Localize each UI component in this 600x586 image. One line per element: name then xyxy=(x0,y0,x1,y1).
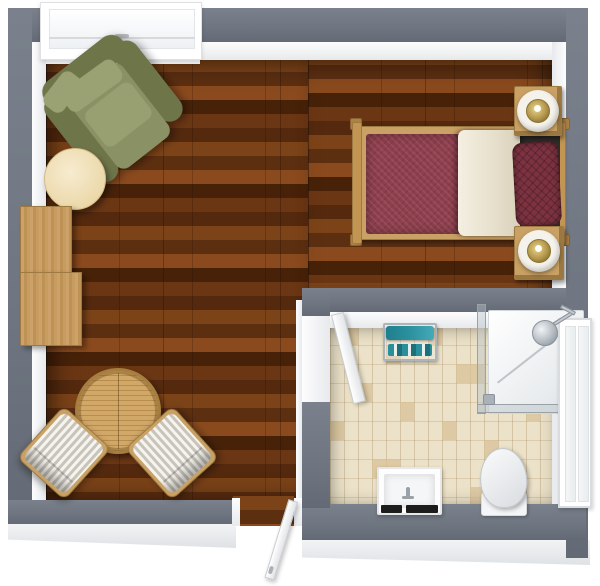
bed-pillow xyxy=(512,141,562,227)
sink-black-bar xyxy=(406,505,438,513)
bed-blanket xyxy=(458,130,520,236)
bathroom-window xyxy=(558,318,592,508)
door-handle-icon xyxy=(268,566,274,575)
lamp-icon xyxy=(518,230,560,272)
wall-divider-horizontal xyxy=(302,288,566,312)
sideboard xyxy=(20,206,82,346)
wall-outer-face-bathroom-bottom xyxy=(302,540,590,565)
bathroom-window-pane xyxy=(565,326,576,502)
wall-outer-face-bottom xyxy=(8,524,236,548)
wall-bottom-bedroom xyxy=(8,500,232,524)
lamp-icon xyxy=(517,90,559,132)
sideboard-bottom-section xyxy=(20,272,82,346)
folded-towels xyxy=(388,344,432,356)
door-jamb xyxy=(232,498,240,526)
bathroom-door-opening xyxy=(302,316,330,402)
lamp-highlight xyxy=(535,245,542,252)
wall-divider-vertical-top xyxy=(302,288,330,316)
side-table xyxy=(44,148,106,210)
sideboard-top-section xyxy=(20,206,72,274)
teal-towel xyxy=(386,326,434,340)
floorplan-render xyxy=(0,0,600,586)
wall-divider-vertical-bottom xyxy=(302,402,330,508)
bathroom-window-pane xyxy=(578,326,589,502)
bed-footboard xyxy=(352,122,362,244)
lamp-highlight xyxy=(534,105,541,112)
wall-top xyxy=(200,8,588,42)
sink-black-bar xyxy=(381,505,402,513)
shower-head-icon xyxy=(532,320,558,346)
bed-duvet xyxy=(366,134,464,234)
wall-bottom-bathroom xyxy=(302,504,586,540)
shower-handle-icon xyxy=(483,394,495,405)
faucet-icon xyxy=(402,496,414,499)
